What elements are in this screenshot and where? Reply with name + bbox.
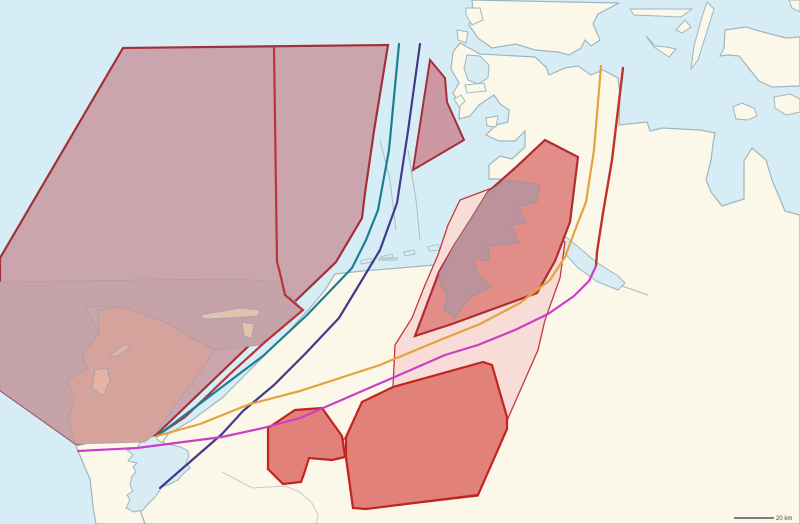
svg-text:20 km: 20 km <box>776 516 792 522</box>
